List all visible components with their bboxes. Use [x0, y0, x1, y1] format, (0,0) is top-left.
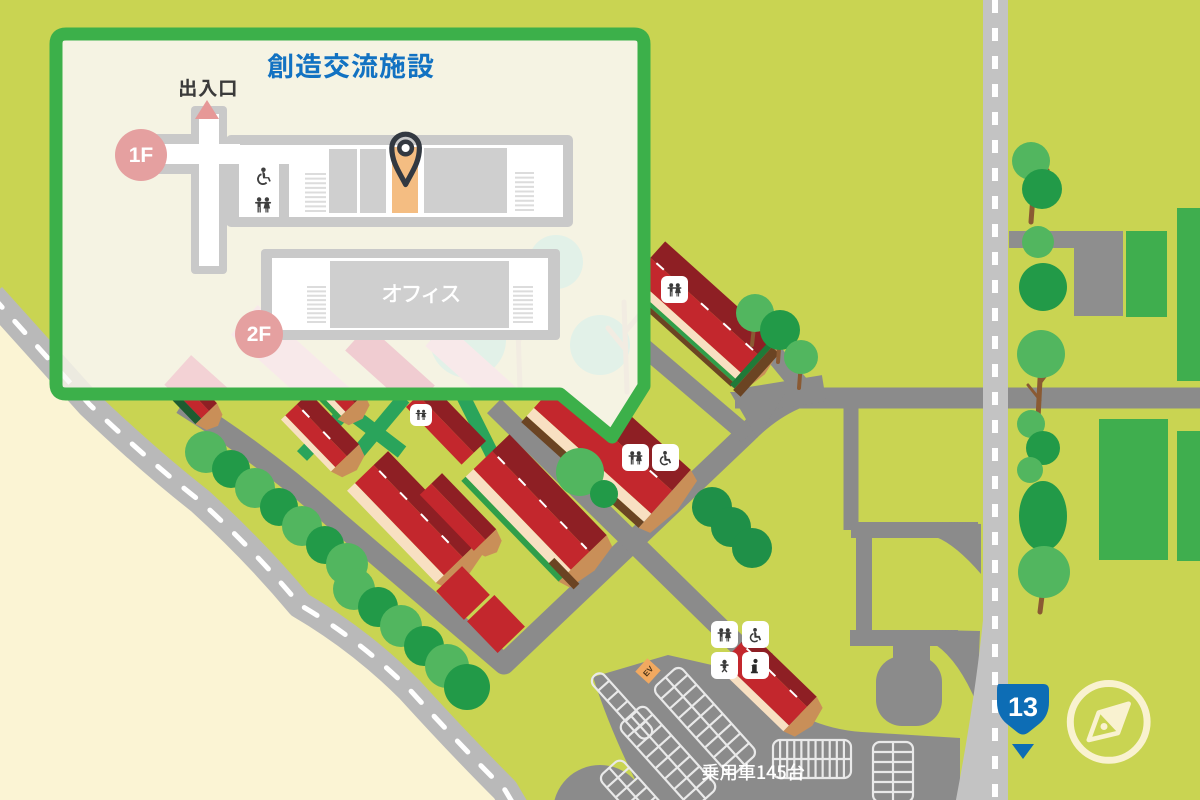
svg-text:1F: 1F: [129, 144, 154, 167]
svg-text:13: 13: [1008, 692, 1038, 722]
svg-text:2F: 2F: [247, 323, 272, 346]
